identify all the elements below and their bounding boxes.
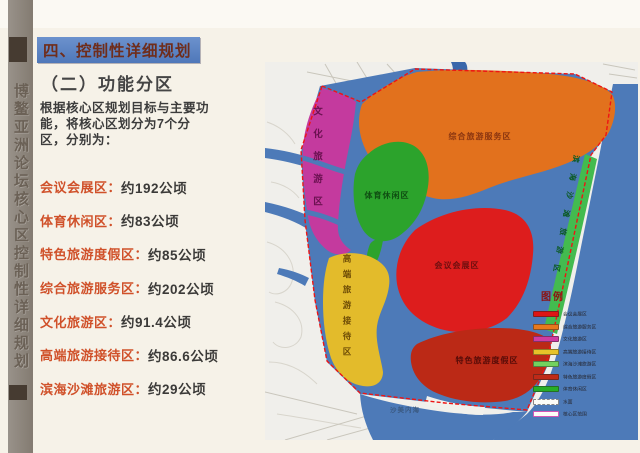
- legend-swatch: [533, 324, 559, 330]
- planning-map: 综合旅游服务区 体育休闲区 会议会展区 特色旅游度假区 沙美内海 文化旅游区 高…: [265, 62, 638, 440]
- zone-name: 体育休闲区：: [40, 211, 121, 230]
- label-sports-zone: 体育休闲区: [365, 190, 410, 200]
- list-item: 文化旅游区： 约91.4公顷: [40, 304, 260, 338]
- list-item: 滨海沙滩旅游区： 约29公顷: [40, 372, 260, 406]
- list-item: 特色旅游度假区： 约85公顷: [40, 237, 260, 271]
- legend-label: 综合旅游服务区: [563, 323, 596, 330]
- legend-swatch: [533, 336, 559, 342]
- zone-name: 会议会展区：: [40, 177, 121, 196]
- zone-name: 综合旅游服务区：: [40, 278, 148, 297]
- label-conference-zone: 会议会展区: [435, 260, 480, 270]
- legend-label: 水面: [563, 398, 573, 405]
- legend-item: 高端旅游接待区: [533, 346, 635, 359]
- list-item: 综合旅游服务区： 约202公顷: [40, 271, 260, 305]
- list-item: 会议会展区： 约192公顷: [40, 170, 260, 204]
- zone-name: 高端旅游接待区：: [40, 345, 148, 364]
- legend-label: 文化旅游区: [563, 336, 587, 343]
- decor-square-bottom: [9, 385, 27, 400]
- zone-area: 约29公顷: [148, 378, 206, 398]
- legend-item: 特色旅游度假区: [533, 371, 635, 384]
- label-inner-sea: 沙美内海: [390, 405, 420, 414]
- zone-area: 约86.6公顷: [148, 345, 218, 365]
- intro-paragraph: 根据核心区规划目标与主要功能，将核心区划分为7个分区，分别为：: [40, 100, 212, 148]
- legend-swatch: [533, 386, 559, 392]
- decor-square-top: [9, 37, 27, 62]
- legend-item: 会议会展区: [533, 308, 635, 321]
- list-item: 高端旅游接待区： 约86.6公顷: [40, 338, 260, 372]
- legend-item: 文化旅游区: [533, 333, 635, 346]
- zone-area: 约91.4公顷: [121, 311, 191, 331]
- zone-area: 约192公顷: [121, 177, 187, 197]
- slide: 博鳌亚洲论坛核心区控制性详细规划 四、控制性详细规划 （二）功能分区 根据核心区…: [0, 0, 640, 453]
- legend-swatch: [533, 361, 559, 367]
- sidebar-vertical-title: 博鳌亚洲论坛核心区控制性详细规划: [10, 83, 31, 371]
- zone-name: 滨海沙滩旅游区：: [40, 379, 148, 398]
- legend-label: 体育休闲区: [563, 386, 587, 393]
- legend-item: 滨海沙滩旅游区: [533, 358, 635, 371]
- label-highend-zone: 高端旅游接待区: [341, 254, 353, 363]
- legend-swatch: [533, 349, 559, 355]
- legend-label: 滨海沙滩旅游区: [563, 361, 596, 368]
- page-subtitle: （二）功能分区: [41, 70, 174, 95]
- section-title-box: 四、控制性详细规划: [37, 37, 200, 63]
- map-legend: 图例 会议会展区综合旅游服务区文化旅游区高端旅游接待区滨海沙滩旅游区特色旅游度假…: [533, 288, 635, 421]
- legend-item: 综合旅游服务区: [533, 321, 635, 334]
- zone-area: 约83公顷: [121, 210, 179, 230]
- label-comprehensive-zone: 综合旅游服务区: [449, 131, 512, 141]
- legend-item: 体育休闲区: [533, 383, 635, 396]
- label-cultural-zone: 文化旅游区: [309, 106, 323, 219]
- legend-title: 图例: [541, 288, 635, 303]
- zone-list: 会议会展区： 约192公顷 体育休闲区： 约83公顷 特色旅游度假区： 约85公…: [40, 170, 260, 405]
- legend-swatch: [533, 411, 559, 417]
- section-title: 四、控制性详细规划: [43, 39, 192, 61]
- legend-label: 特色旅游度假区: [563, 373, 596, 380]
- legend-item: 水面: [533, 396, 635, 409]
- legend-label: 高端旅游接待区: [563, 348, 596, 355]
- legend-swatch: [533, 374, 559, 380]
- zone-name: 文化旅游区：: [40, 312, 121, 331]
- label-featured-zone: 特色旅游度假区: [456, 355, 519, 365]
- legend-label: 会议会展区: [563, 311, 587, 318]
- legend-swatch: [533, 399, 559, 405]
- legend-item: 核心区范围: [533, 408, 635, 421]
- zone-area: 约85公顷: [148, 244, 206, 264]
- zone-area: 约202公顷: [148, 278, 214, 298]
- legend-items: 会议会展区综合旅游服务区文化旅游区高端旅游接待区滨海沙滩旅游区特色旅游度假区体育…: [533, 308, 635, 421]
- legend-swatch: [533, 311, 559, 317]
- list-item: 体育休闲区： 约83公顷: [40, 204, 260, 238]
- zone-name: 特色旅游度假区：: [40, 244, 148, 263]
- legend-label: 核心区范围: [563, 411, 587, 418]
